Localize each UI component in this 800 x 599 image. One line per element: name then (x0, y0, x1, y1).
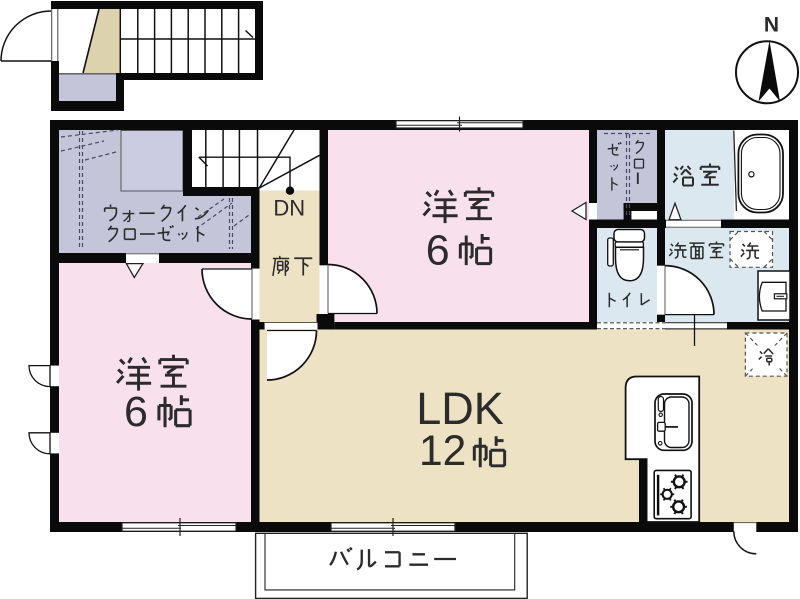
svg-text:6: 6 (124, 388, 148, 436)
svg-text:LDK: LDK (416, 383, 504, 434)
svg-text:6: 6 (426, 227, 450, 275)
svg-text:N: N (764, 14, 779, 37)
svg-text:12: 12 (419, 428, 466, 475)
svg-text:DN: DN (273, 196, 305, 221)
